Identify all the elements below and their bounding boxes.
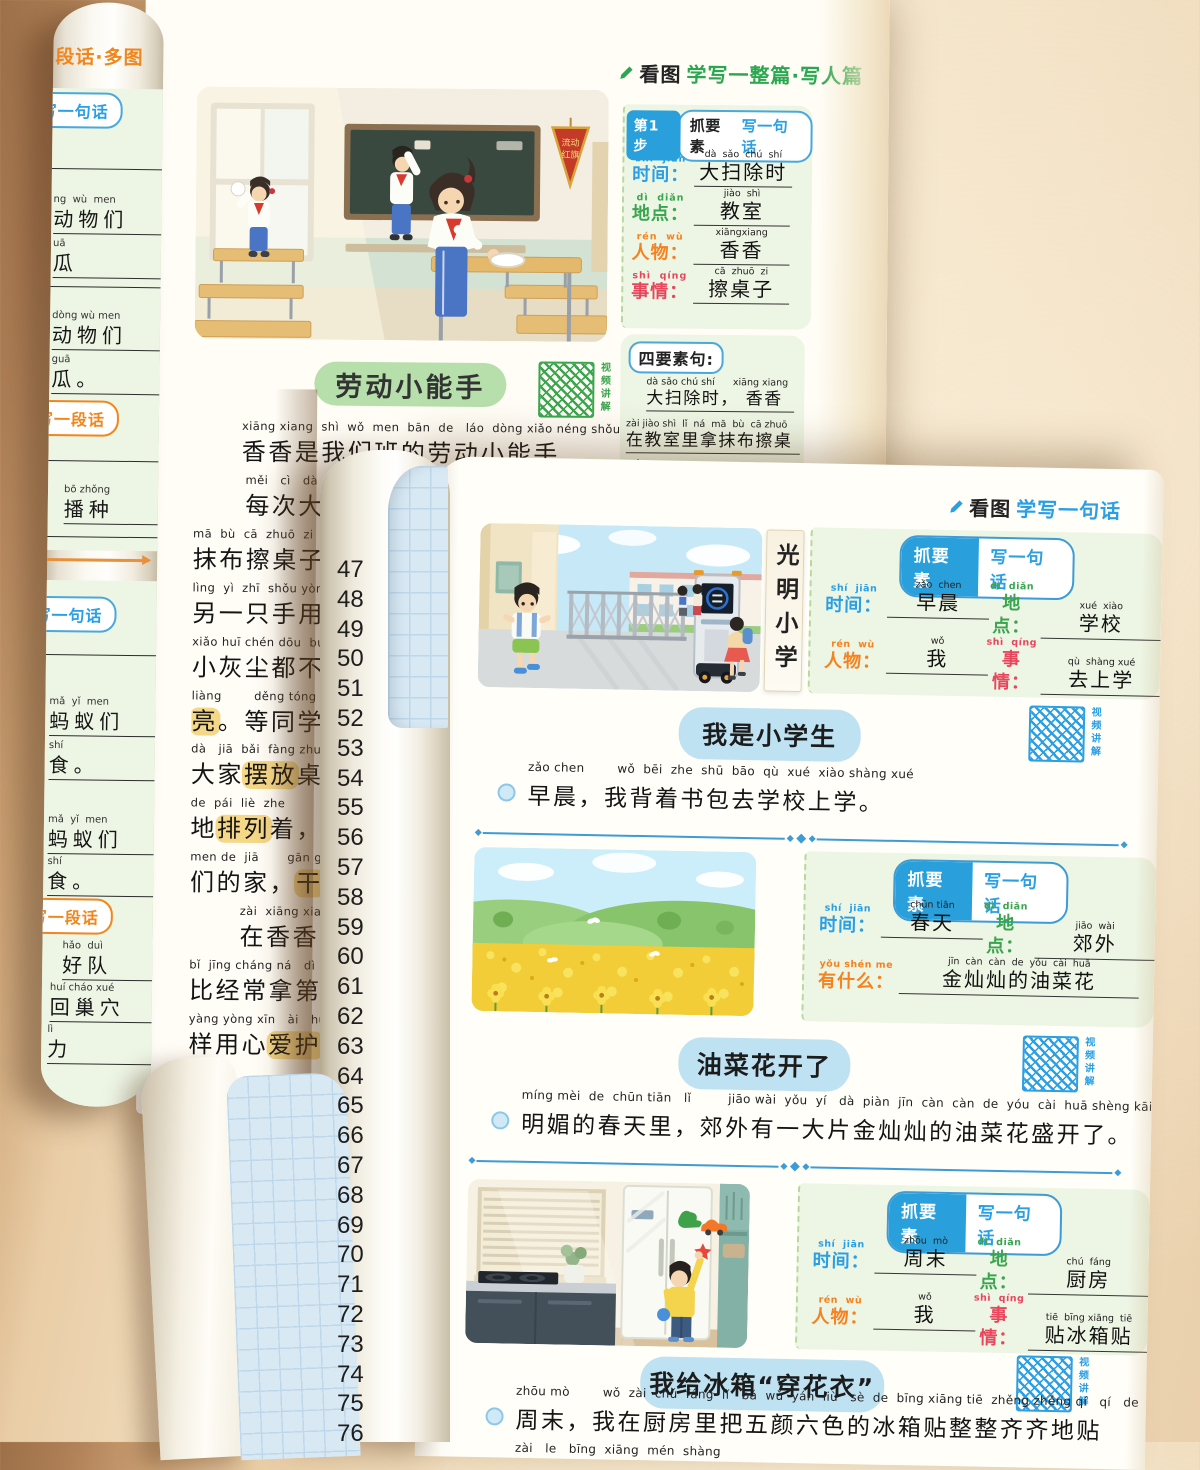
line-number: 66 [337,1122,364,1150]
field-value: 我 [891,646,983,673]
sentence-bullet-icon [491,1111,509,1129]
essay-line-pinyin: yàng yòng xīn ài hù [189,1011,339,1028]
field-value: 我 [878,1302,970,1329]
line-number: 63 [337,1033,364,1061]
essay-line-pinyin: bǐ jīng cháng ná dì [189,957,339,974]
field-value-pinyin: xiāngxiang [699,227,785,239]
section-divider [466,1157,1122,1177]
field-label: rén wù人物： [811,1294,869,1329]
line-number: 67 [337,1152,364,1180]
line-number: 57 [337,854,364,882]
exercise-title: 我是小学生 [678,707,861,762]
sentence-bullet-icon [497,783,515,801]
fill-in-hanzi: 动物们 [53,206,164,233]
divider-diamond-icon [786,835,793,842]
pencil-icon [619,65,634,80]
divider-diamond-icon [808,835,815,842]
field-value-line: zǎo chen早晨 [887,579,990,620]
field-row: dì diǎn地点：jiào shì教室 [632,187,790,226]
header-prefix: 看图 [969,492,1012,522]
field-value: 金灿灿的油菜花 [904,966,1134,995]
field-value-line: jiāo wài郊外 [1034,920,1155,961]
sentence-text: 早晨，我背着书包去学校上学。 [527,777,914,818]
field-row: shí jiān时间：zhōu mò周末 [812,1233,977,1275]
step-fields: shí jiān时间：dà sǎo chú shí大扫除时dì diǎn地点：j… [625,104,813,106]
field-value-line: tiē bīng xiāng tiē贴冰箱贴 [1028,1312,1149,1353]
classroom-illustration: 流动 红旗 [195,86,609,342]
essay-word: 样用心 [188,1030,268,1059]
left-page-header: 段话·多图 [55,42,144,70]
fill-in-text: guā瓜。 [51,354,163,395]
field-label: dì diǎn地点： [974,1237,1024,1295]
field-value: 擦桌子 [698,277,784,303]
essay-line: dà jiā bǎi fàng zhuō大家摆放桌 [191,742,341,793]
fill-in-text: shí食。 [48,740,160,781]
essay-line: bǐ jīng cháng ná dì比经常拿第 [189,957,339,1008]
line-number: 51 [337,675,364,703]
fill-in-text: lì力 [47,1024,159,1065]
field-row: shí jiān时间：chūn tiān春天 [819,897,984,939]
field-row: dì diǎn地点：chú fáng厨房 [974,1237,1149,1297]
field-row: shì qíng事情：qù shàng xué去上学 [986,637,1162,697]
fill-in-hanzi: 食。 [49,752,161,779]
field-row: dì diǎn地点：jiāo wài郊外 [980,901,1155,961]
video-qr: 视频讲解 [1028,705,1147,763]
line-number: 76 [337,1420,364,1448]
field-label: shí jiān时间： [812,1238,870,1273]
field-value-pinyin: cā zhuō zi [698,266,784,278]
divider-diamond-icon [802,1163,809,1170]
left-rolled-page: 段话·多图 写一句话ng wù men动物们uā瓜dòng wù men动物们g… [41,2,164,1107]
line-number: 70 [337,1241,364,1269]
front-page-header: 看图 学写一句话 [949,492,1122,524]
field-value-line: qù shàng xué去上学 [1041,656,1162,697]
video-qr-label: 视频讲解 [596,362,611,418]
fill-in-text: bō zhǒng播种 [64,484,164,525]
line-number: 71 [337,1271,364,1299]
four-sentence-line: dà sǎo chú shí xiāng xiang大扫除时， 香香 [646,376,794,412]
fill-in-hanzi: 力 [47,1036,159,1063]
essay-word: 地 [190,815,217,843]
section-badge: 写一句话 [41,596,117,633]
field-value-line: xué xiào学校 [1041,600,1162,641]
line-number: 53 [337,735,364,763]
field-value-line: jiào shì教室 [694,188,790,227]
example-sentence: zǎo chen wǒ bēi zhe shū bāo qù xué xiào … [497,759,914,818]
divider-diamond-icon [780,1163,787,1170]
pencil-icon [949,499,964,514]
flow-arrow-icon [47,558,149,562]
section-badge: 写一段话 [41,400,120,437]
field-row: rén wù人物：wǒ我 [824,634,989,676]
divider-diamond-icon [1114,1169,1121,1176]
step-panel: 第1步 抓要素 写一句话 shí jiān时间：dà sǎo chú shí大扫… [621,104,813,330]
divider-diamond-icon [474,829,481,836]
video-qr: 视频讲解 [538,361,656,418]
video-qr-label: 视频讲解 [1086,707,1102,763]
line-number: 74 [337,1361,364,1389]
example-sentence: míng mèi de chūn tiān lǐ jiāo wài yǒu yí… [491,1087,1164,1151]
section-divider [473,829,1129,849]
line-number: 52 [337,705,364,733]
field-row: rén wù人物：xiāngxiang香香 [631,226,789,265]
school-sign: 光明小学 [764,529,805,692]
essay-title: 劳动小能手 [314,361,506,407]
header-prefix: 看图 [639,58,681,87]
field-value: 贴冰箱贴 [1033,1323,1143,1350]
essay-line: de pái liè zhe地排列着， [190,796,340,847]
essay-line-text: 比经常拿第 [189,973,339,1008]
essay-line: yàng yòng xīn ài hù样用心爱护 [188,1011,338,1062]
section-badge: 写一句话 [41,92,123,129]
svg-text:流动: 流动 [561,137,579,149]
field-value: 香香 [698,238,784,264]
field-value: 郊外 [1040,931,1150,958]
field-value-line: chūn tiān春天 [881,899,984,940]
field-value-line: cā zhuō zi擦桌子 [693,266,789,305]
field-value-pinyin: dà sǎo chú shí [699,149,787,161]
field-label: dì diǎn地点： [987,581,1037,639]
field-value-line: chú fáng厨房 [1028,1256,1149,1297]
line-number: 69 [337,1212,364,1240]
elements-panel: 抓要素写一句话shí jiān时间：zǎo chen早晨dì diǎn地点：xu… [808,527,1163,700]
sentence-block: zǎo chen wǒ bēi zhe shū bāo qù xué xiào … [527,760,914,818]
field-value: 早晨 [892,590,984,617]
essay-line-pinyin: de pái liè zhe [191,796,341,813]
fill-in-hanzi: 食。 [47,868,159,895]
line-number: 62 [337,1003,364,1031]
field-value: 周末 [879,1246,971,1273]
field-label: shì qíng事情： [631,270,688,303]
fill-in-text: mǎ yǐ men蚂蚁们 [49,696,161,737]
fill-in-hanzi: 动物们 [52,322,164,349]
fill-in-hanzi: 回巢穴 [50,994,162,1021]
field-label: rén wù人物： [631,231,688,264]
section-badge: 写一段话 [41,898,114,935]
field-row: shì qíng事情：cā zhuō zi擦桌子 [631,265,789,304]
line-number: 49 [337,616,364,644]
fill-in-text: huí cháo xué回巢穴 [50,982,162,1023]
field-label: shí jiān时间： [825,583,883,618]
field-value-line: dà sǎo chú shí大扫除时 [694,149,792,188]
field-value-line: zhōu mò周末 [874,1235,977,1276]
line-number: 58 [337,884,364,912]
sentence-bullet-icon [485,1407,503,1425]
line-number: 72 [337,1301,364,1329]
essay-line-pinyin: men de jiā gān g [190,850,340,867]
example-sentence: zhōu mò wǒ zài chú fáng lǐ bǎ wǔ yán liù… [485,1383,1164,1467]
divider-diamond-icon [796,834,806,844]
essay-word: 大家 [191,761,244,789]
sentence-block: míng mèi de chūn tiān lǐ jiāo wài yǒu yí… [521,1088,1164,1152]
fill-in-hanzi: 蚂蚁们 [48,826,160,853]
field-label: rén wù人物： [824,639,882,674]
sentence-block: zhōu mò wǒ zài chú fáng lǐ bǎ wǔ yán liù… [515,1384,1164,1467]
field-value-pinyin: jiào shì [699,188,785,200]
kitchen-fridge-illustration [465,1179,750,1348]
video-qr-label: 视频讲解 [1080,1037,1096,1093]
line-number: 59 [337,914,364,942]
line-number: 61 [337,973,364,1001]
fill-in-hanzi: 瓜。 [51,366,163,393]
line-number: 60 [337,943,364,971]
field-value-line: wǒ我 [873,1291,976,1332]
essay-line-text: 地排列着， [190,812,340,847]
elements-panel: 抓要素写一句话shí jiān时间：zhōu mò周末dì diǎn地点：chú… [795,1183,1150,1356]
field-label: shì qíng事情： [986,637,1038,695]
qr-code-icon [538,361,594,417]
book-photo: { "colors":{"blue":"#2b9fe3","green":"#3… [0,0,1200,1442]
line-number: 48 [337,586,364,614]
highlighted-word: 排列 [215,815,272,843]
essay-line: men de jiā gān g们的家，干 [190,850,340,901]
field-row: rén wù人物：wǒ我 [811,1289,976,1331]
line-number: 55 [337,794,364,822]
header-title: 学写一整篇·写人篇 [686,59,863,90]
video-qr: 视频讲解 [1022,1035,1141,1093]
field-value: 去上学 [1046,667,1156,694]
line-number: 65 [337,1092,364,1120]
divider-diamond-icon [1120,841,1127,848]
fill-in-text: shí食。 [47,856,159,897]
header-title: 学写一句话 [1016,493,1122,524]
qr-code-icon [1022,1035,1079,1092]
line-number: 50 [337,645,364,673]
field-label: shí jiān时间： [819,902,877,937]
flower-field-illustration [471,847,756,1016]
fill-in-text: dòng wù men动物们 [52,310,164,351]
field-value: 大扫除时 [699,160,787,186]
svg-text:红旗: 红旗 [561,149,579,161]
qr-code-icon [1028,705,1085,762]
line-number: 68 [337,1182,364,1210]
school-sign-text: 光明小学 [766,542,803,679]
essay-line-text: 们的家，干 [190,866,340,901]
field-value-line: jīn càn càn de yóu cài huā金灿灿的油菜花 [899,955,1140,999]
line-number: 73 [337,1331,364,1359]
fill-in-hanzi: 好队 [62,952,164,979]
line-number: 64 [337,1063,364,1091]
line-number: 56 [337,824,364,852]
page-fold-shadow [269,389,317,1089]
fill-in-text: hǎo duì好队 [62,940,164,981]
field-label: yǒu shén me有什么： [818,958,895,993]
four-lines: dà sǎo chú shí xiāng xiang大扫除时， 香香zài ji… [621,334,805,336]
line-number: 47 [337,556,364,584]
field-label: shì qíng事情： [973,1293,1025,1351]
field-row: yǒu shén me有什么：jīn càn càn de yóu cài hu… [818,953,1140,998]
elements-panel: 抓要素写一句话shí jiān时间：chūn tiān春天dì diǎn地点：j… [801,851,1156,1028]
sentence-text: 大扫除时， 香香 [646,387,794,410]
fill-in-hanzi: 瓜 [53,250,164,277]
field-label: dì diǎn地点： [632,192,689,225]
back-page-header: 看图 学写一整篇·写人篇 [619,58,863,89]
divider-diamond-icon [468,1157,475,1164]
line-number: 75 [337,1390,364,1418]
field-value: 厨房 [1033,1267,1143,1294]
field-value-line: wǒ我 [886,635,989,676]
field-row: shì qíng事情：tiē bīng xiāng tiē贴冰箱贴 [973,1293,1149,1353]
fill-in-hanzi: 播种 [64,496,164,523]
field-row: dì diǎn地点：xué xiào学校 [987,581,1162,641]
line-number: 54 [337,765,364,793]
highlighted-word: 亮 [191,707,220,735]
field-value-line: xiāngxiang香香 [693,227,789,266]
field-label: dì diǎn地点： [980,901,1030,959]
grid-paper-top [388,466,448,728]
fill-in-text: ng wù men动物们 [53,194,164,235]
fill-in-hanzi: 蚂蚁们 [49,708,161,735]
essay-line-text: 大家摆放桌 [191,758,341,793]
field-row: shí jiān时间：zǎo chen早晨 [825,578,990,620]
essay-line-pinyin: dà jiā bǎi fàng zhuō [191,742,341,759]
school-gate-illustration [478,523,763,692]
front-page: 看图 学写一句话 光明小学抓要素写一句话shí jiān时间：zǎo chen早… [415,456,1164,1470]
exercise-title: 油菜花开了 [678,1037,851,1092]
step-number-tag: 第1步 [626,110,681,160]
fill-in-text: mǎ yǐ men蚂蚁们 [48,814,160,855]
field-value: 春天 [886,910,978,937]
field-value: 学校 [1046,611,1156,638]
field-value: 教室 [699,199,785,225]
fill-in-text: uā瓜 [53,238,164,279]
divider-diamond-icon [789,1162,799,1172]
